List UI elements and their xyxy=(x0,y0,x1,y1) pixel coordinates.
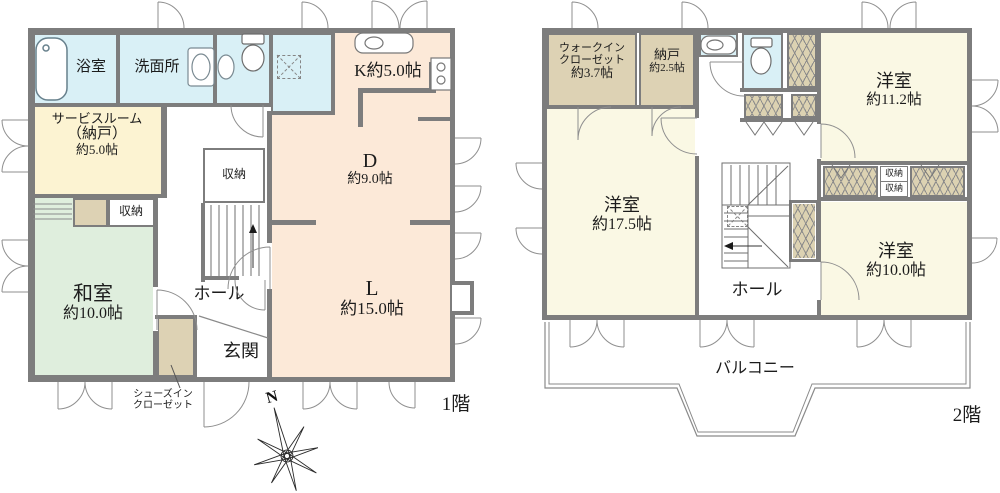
door-gap xyxy=(817,124,821,159)
bedroom-10-label: 洋室 約10.0帖 xyxy=(866,242,926,279)
closet-hatched-e xyxy=(910,166,965,197)
wall xyxy=(740,88,821,92)
wall xyxy=(163,103,167,198)
dining-label: D 約9.0帖 xyxy=(347,150,393,187)
toilet-room-1f xyxy=(215,33,271,105)
toilet-room-2f xyxy=(742,33,783,90)
small-closet-b-label: 収納 xyxy=(885,184,903,194)
living-niche xyxy=(452,281,474,315)
compass-north-label: N xyxy=(264,388,280,408)
door-gap xyxy=(267,243,272,289)
balcony-label: バルコニー xyxy=(715,360,795,378)
bedroom-17-label: 洋室 約17.5帖 xyxy=(592,196,652,233)
nando-label: 納戸 約2.5帖 xyxy=(649,48,685,74)
balcony-outline xyxy=(545,322,970,436)
bathroom-label: 浴室 xyxy=(76,59,106,76)
washitsu-closet-label: 収納 xyxy=(119,205,143,218)
washroom-label: 洗面所 xyxy=(134,59,179,76)
hall1-label: ホール xyxy=(194,285,245,304)
wall xyxy=(821,161,967,165)
closet-hatched-c xyxy=(791,94,817,118)
service-room-label: サービスルーム （納戸） 約5.0帖 xyxy=(52,112,143,157)
wall xyxy=(821,197,967,201)
wall xyxy=(201,276,239,280)
closet-hatched-a xyxy=(787,33,817,88)
door-gap xyxy=(817,262,821,300)
wall xyxy=(269,111,335,115)
kitchen-label: K約5.0帖 xyxy=(354,62,422,81)
pantry-hatch-mark xyxy=(277,55,301,79)
sink-counter-2f xyxy=(699,33,738,57)
wall xyxy=(28,194,167,198)
wall xyxy=(418,117,450,121)
shoes-in-closet xyxy=(157,317,195,377)
walk-in-closet-label: ウォークイン クローゼット 約3.7帖 xyxy=(559,42,625,80)
wall xyxy=(201,203,205,282)
wall xyxy=(695,31,699,315)
bedroom-11-label: 洋室 約11.2帖 xyxy=(866,72,922,108)
entrance-label: 玄関 xyxy=(223,342,259,362)
small-closet-a-label: 収納 xyxy=(885,169,903,179)
floor1-title: 1階 xyxy=(442,395,471,416)
closet-hatched-b xyxy=(744,94,783,118)
door-gap xyxy=(695,118,699,156)
closet-hatched-f xyxy=(793,204,815,258)
wall-stub xyxy=(272,220,316,225)
compass-rose-icon: N xyxy=(236,381,327,493)
wall xyxy=(429,62,433,93)
door-gap xyxy=(153,287,158,331)
wall xyxy=(193,315,197,377)
stairs-closet-label: 収納 xyxy=(222,168,246,181)
stairwell-void xyxy=(727,206,748,227)
kitchen-counter-wall xyxy=(358,88,363,127)
washitsu-closet-tan xyxy=(73,198,108,227)
wall xyxy=(331,33,335,113)
wall xyxy=(740,118,821,122)
washitsu-label: 和室 約10.0帖 xyxy=(63,283,123,323)
living-label: L 約15.0帖 xyxy=(340,277,404,319)
wall xyxy=(28,103,271,107)
kitchen-counter-wall xyxy=(358,88,436,93)
floor2-title: 2階 xyxy=(953,406,982,427)
hall2-label: ホール xyxy=(732,281,783,300)
shoes-closet-label: シューズイン クローゼット xyxy=(133,389,193,411)
wall xyxy=(155,315,197,319)
wall-stub xyxy=(410,220,450,225)
closet-hatched-d xyxy=(823,166,878,197)
floor-plan-canvas: 浴室 洗面所 サービスルーム （納戸） 約5.0帖 K約5.0帖 D 約9.0帖… xyxy=(0,0,1000,493)
wall xyxy=(545,105,699,109)
